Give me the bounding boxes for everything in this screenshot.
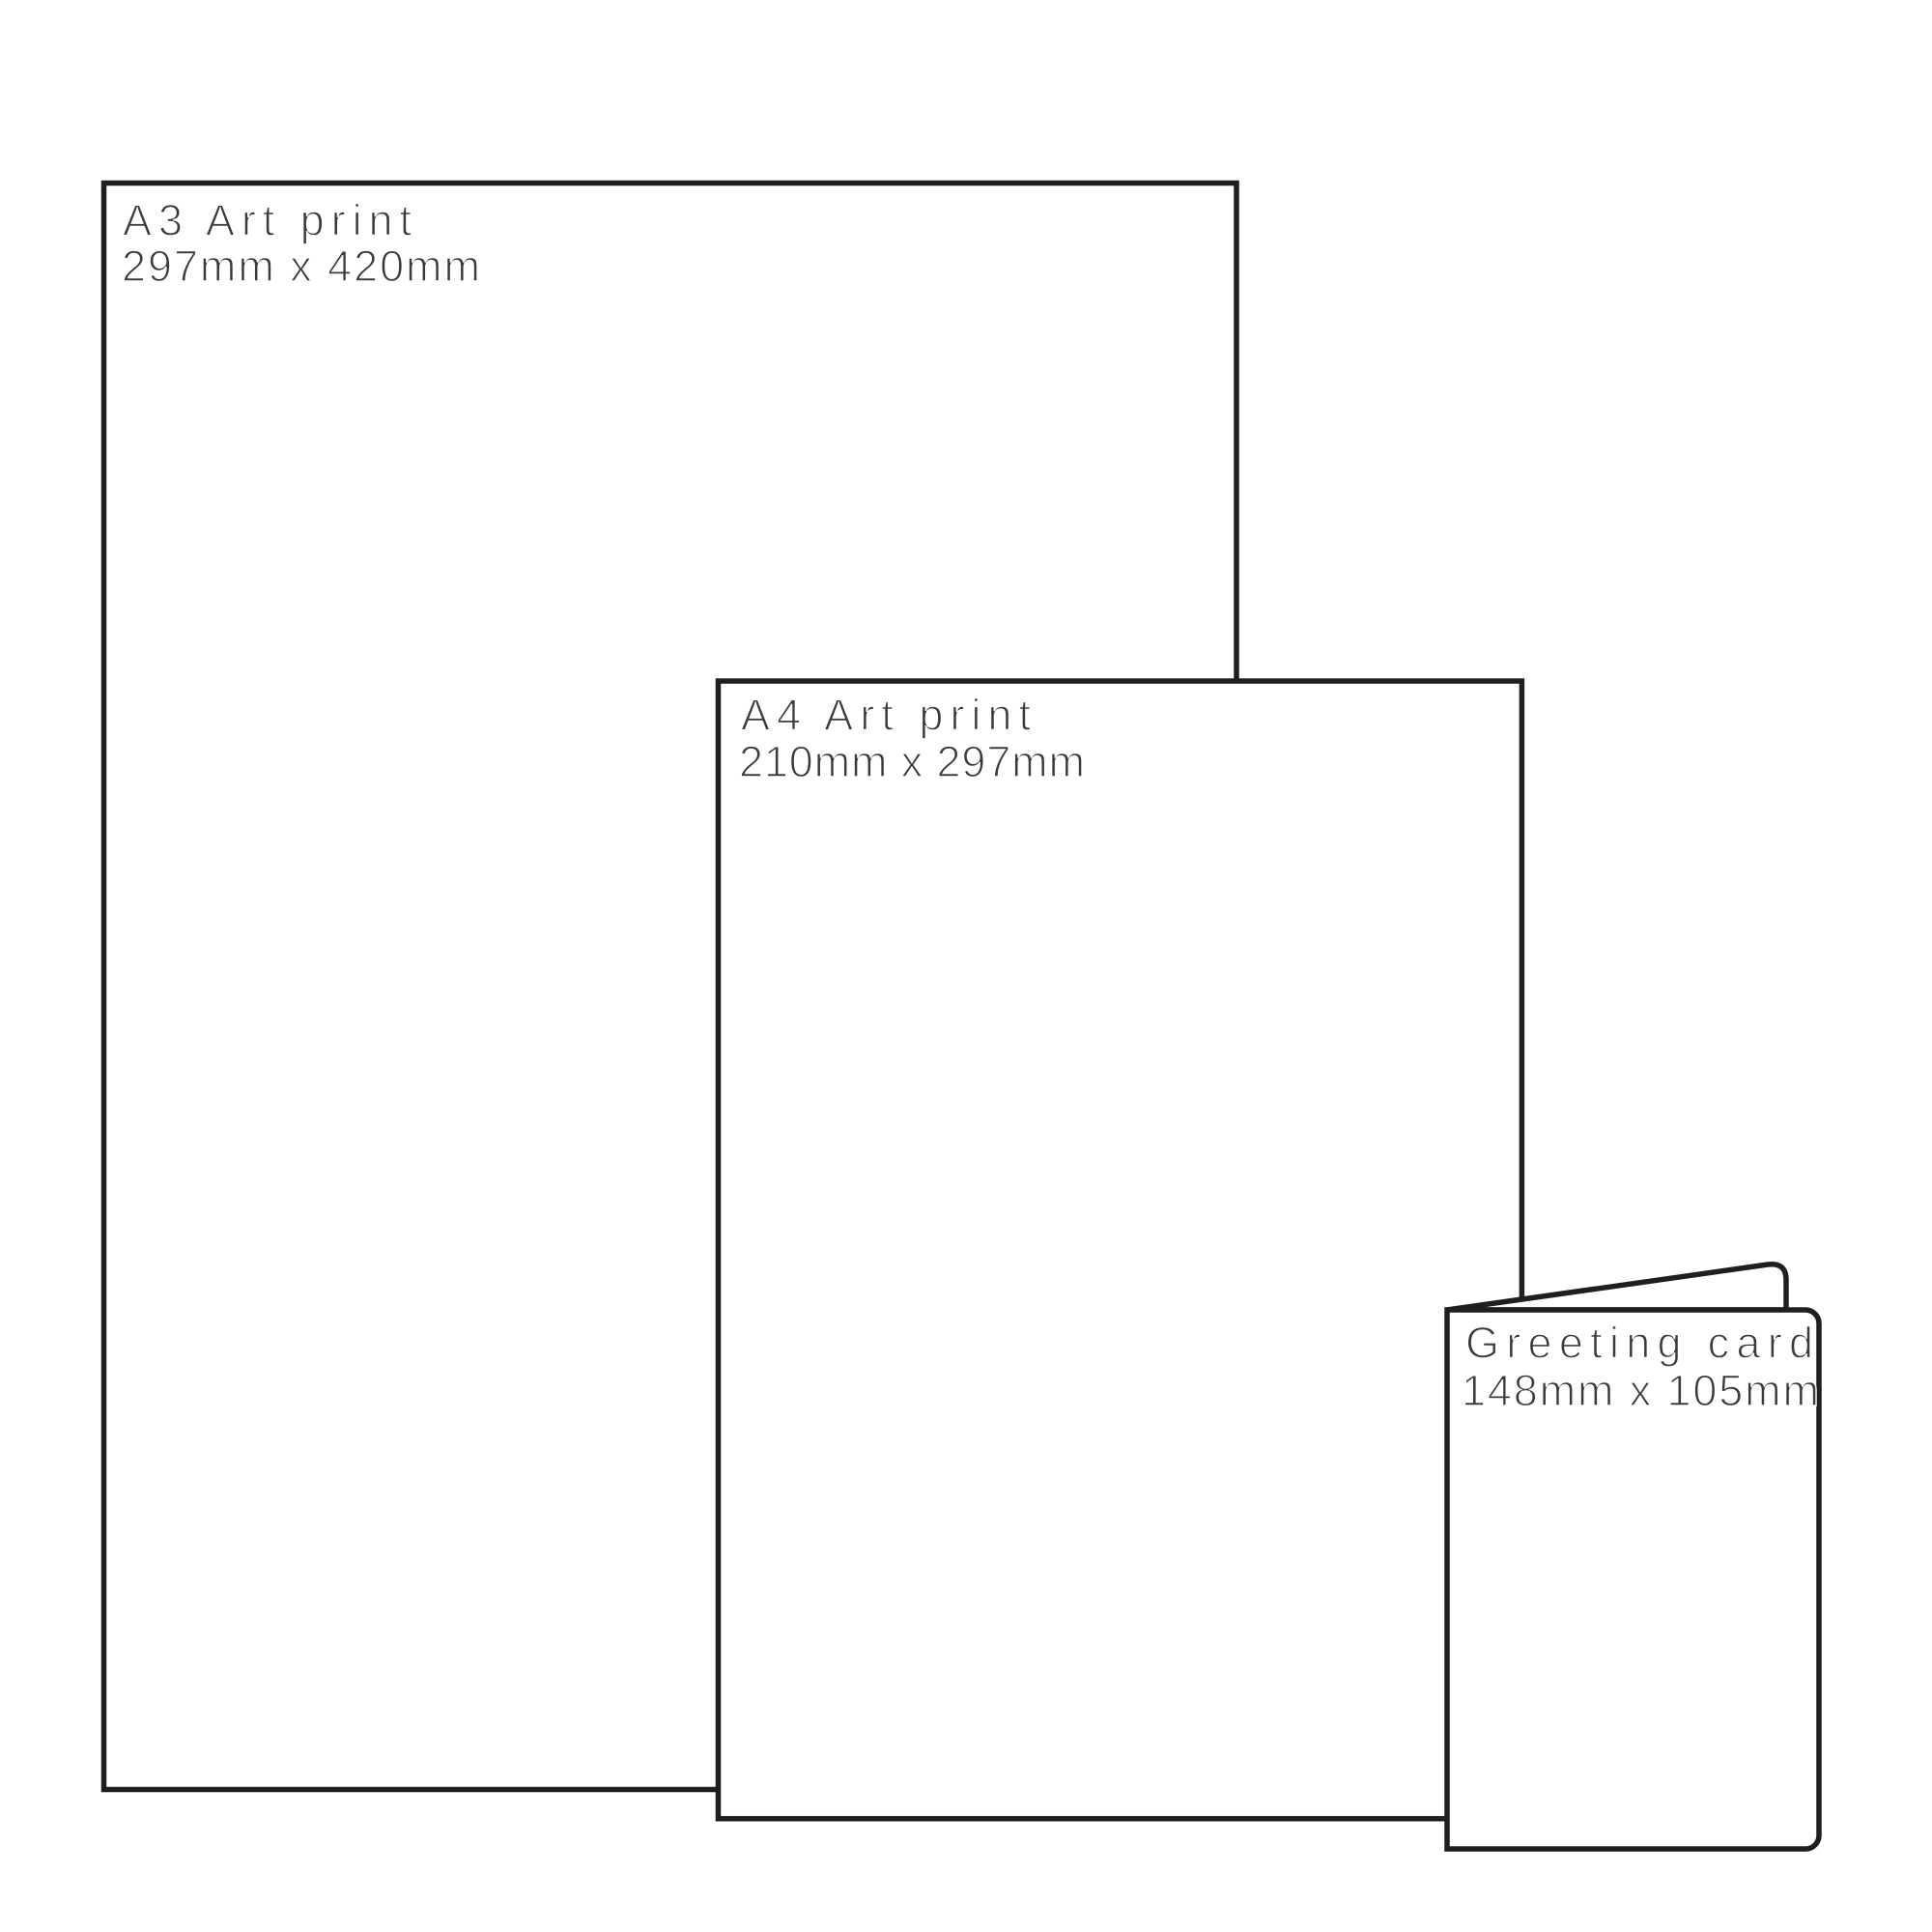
svg-text:A3 Art print: A3 Art print	[123, 196, 412, 245]
svg-text:210mm x 297mm: 210mm x 297mm	[739, 737, 1085, 786]
svg-text:297mm x 420mm: 297mm x 420mm	[122, 241, 480, 291]
svg-text:A4 Art print: A4 Art print	[741, 691, 1031, 740]
svg-text:148mm x 105mm: 148mm x 105mm	[1462, 1366, 1819, 1415]
